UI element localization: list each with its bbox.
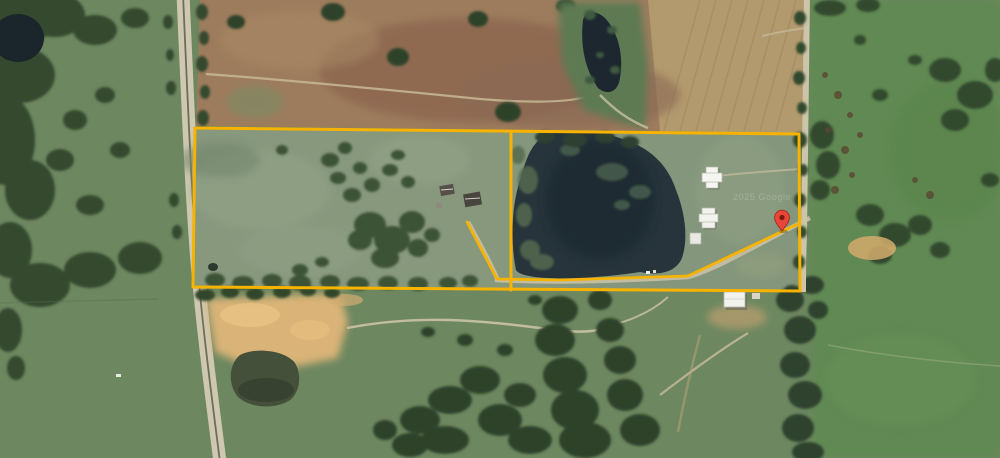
pin-shadow	[779, 230, 788, 234]
pin-center-dot	[779, 215, 784, 220]
map-watermark: 2025 Google	[733, 192, 791, 202]
property-boundary-overlay	[0, 0, 1000, 458]
driveway-easement-line	[467, 222, 800, 280]
satellite-map-viewport[interactable]: 2025 Google	[0, 0, 1000, 458]
